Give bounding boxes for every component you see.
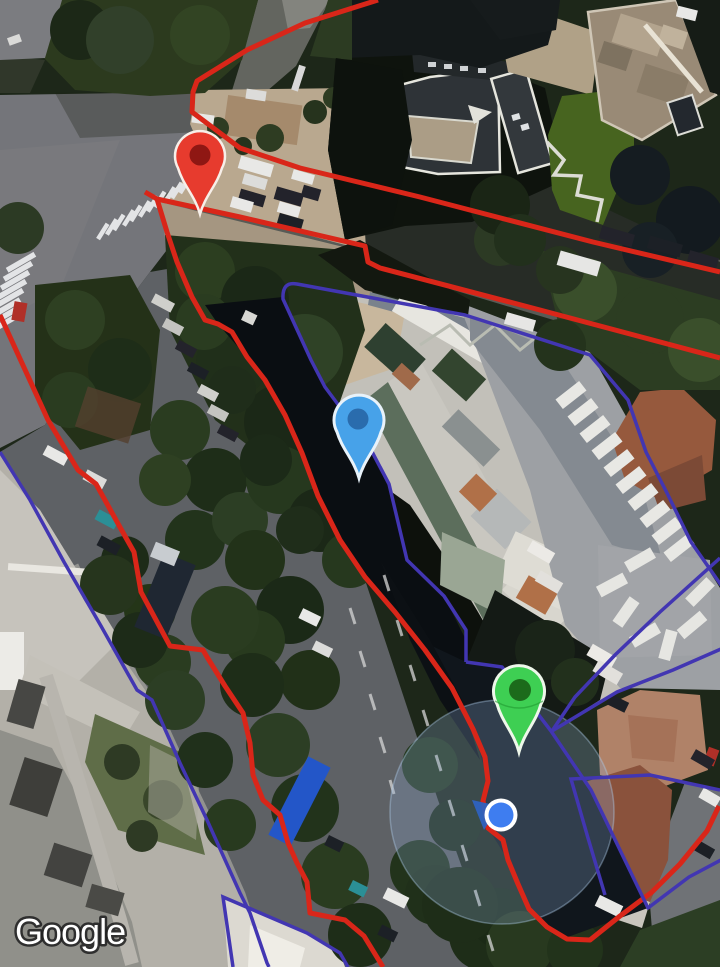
svg-text:Google: Google: [15, 911, 125, 952]
